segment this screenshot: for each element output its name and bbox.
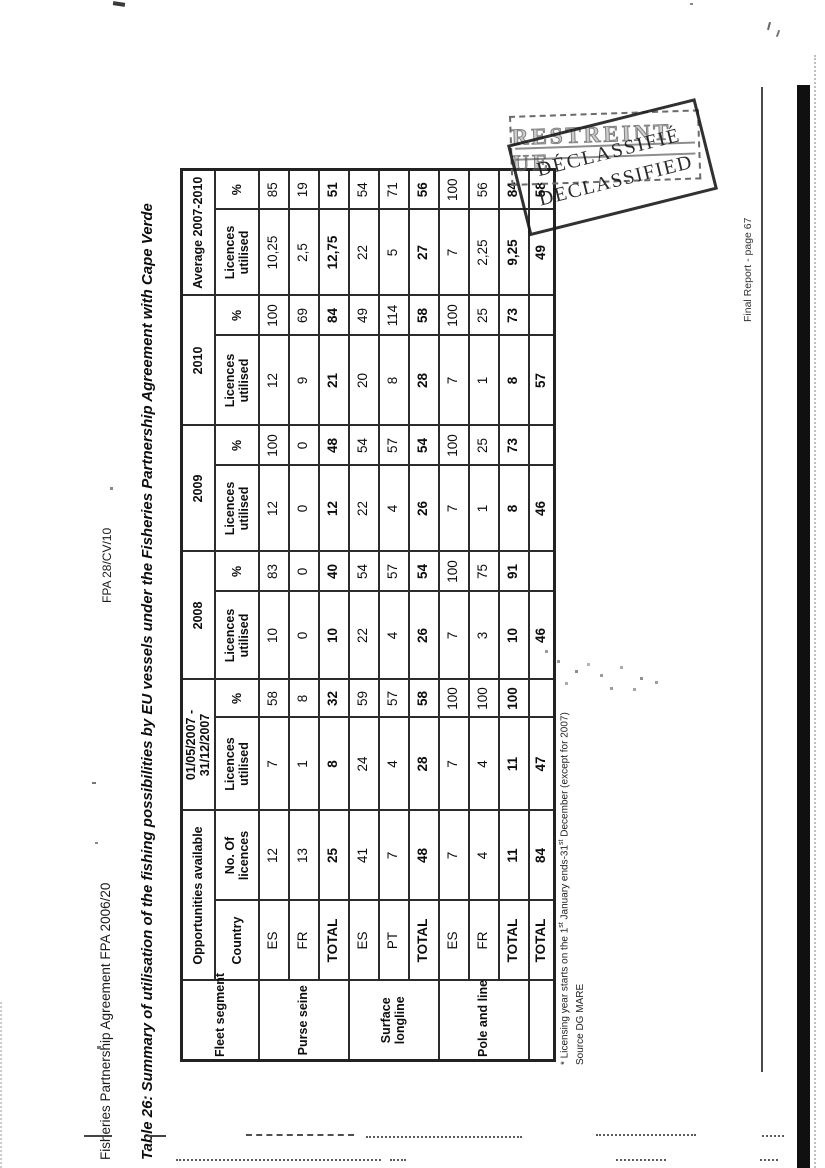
cell: 58 (259, 679, 289, 717)
col-header-licences-utilised: Licences utilised (215, 209, 259, 295)
cell: 11 (499, 717, 529, 810)
cell: 7 (439, 335, 469, 425)
scan-mark (92, 782, 96, 784)
cell: 46 (529, 465, 555, 551)
table-row-grand-total: TOTAL 84474646574958 (529, 169, 555, 1060)
cell: 0 (289, 591, 319, 679)
cell: 57 (379, 551, 409, 591)
cell: 75 (469, 551, 499, 591)
scan-dash (176, 1159, 381, 1161)
cell: 3 (469, 591, 499, 679)
cell (529, 679, 555, 717)
cell: 5 (379, 209, 409, 295)
cell (529, 425, 555, 465)
fleet-group-label: Pole and line (439, 981, 529, 1061)
cell-country: FR (289, 901, 319, 981)
cell: 7 (439, 591, 469, 679)
cell: 54 (349, 169, 379, 209)
cell: 48 (319, 425, 349, 465)
document-header-reference: FPA 28/CV/10 (100, 528, 114, 603)
cell-country: TOTAL (319, 901, 349, 981)
cell: 7 (439, 810, 469, 900)
cell: 83 (259, 551, 289, 591)
cell: 4 (379, 465, 409, 551)
table-row: Purse seine ES 127581083121001210010,258… (259, 169, 289, 1060)
cell: 57 (379, 425, 409, 465)
cell: 2,5 (289, 209, 319, 295)
col-header-percent: % (215, 295, 259, 335)
scan-dash (390, 1159, 406, 1161)
cell-country: FR (469, 901, 499, 981)
scan-noise-right-edge (814, 55, 816, 1168)
cell: 54 (349, 551, 379, 591)
cell-country: TOTAL (499, 901, 529, 981)
scan-dash (246, 1134, 354, 1136)
scan-dash (366, 1136, 522, 1138)
cell: 47 (529, 717, 555, 810)
cell: 84 (319, 295, 349, 335)
col-header-country: Country (215, 901, 259, 981)
cell: 32 (319, 679, 349, 717)
cell: 25 (469, 295, 499, 335)
col-header-licences-utilised: Licences utilised (215, 465, 259, 551)
cell: 27 (409, 209, 439, 295)
cell: 22 (349, 465, 379, 551)
cell: 28 (409, 717, 439, 810)
cell: 8 (499, 335, 529, 425)
table-header-row-1: Fleet segment Opportunities available 01… (182, 169, 215, 1060)
cell: 100 (439, 295, 469, 335)
col-header-percent: % (215, 679, 259, 717)
cell: 51 (319, 169, 349, 209)
col-header-percent: % (215, 551, 259, 591)
cell: 58 (409, 295, 439, 335)
table-header-row-2: Country No. Of licences Licences utilise… (215, 169, 259, 1060)
cell: 58 (409, 679, 439, 717)
scan-mark (97, 1046, 101, 1049)
scan-dash (762, 1135, 784, 1137)
cell-empty (529, 981, 555, 1061)
cell: 10,25 (259, 209, 289, 295)
cell (529, 551, 555, 591)
cell-country: PT (379, 901, 409, 981)
table-row-total: TOTAL 4828582654265428582756 (409, 169, 439, 1060)
col-header-licences-utilised: Licences utilised (215, 717, 259, 810)
cell: 59 (349, 679, 379, 717)
cell: 8 (379, 335, 409, 425)
cell-country: TOTAL (409, 901, 439, 981)
table-row: Surface longline ES 41245922542254204922… (349, 169, 379, 1060)
cell: 10 (259, 591, 289, 679)
cell: 8 (499, 465, 529, 551)
cell: 73 (499, 295, 529, 335)
scan-mark (95, 842, 98, 844)
col-header-licences-utilised: Licences utilised (215, 591, 259, 679)
cell-country: ES (259, 901, 289, 981)
cell: 0 (289, 425, 319, 465)
cell: 100 (439, 425, 469, 465)
col-header-fleet-segment: Fleet segment (182, 981, 259, 1061)
cell: 26 (409, 465, 439, 551)
table-footnote: * Licensing year starts on the 1st Janua… (558, 712, 570, 1065)
cell: 22 (349, 591, 379, 679)
footer-rule-line (761, 87, 763, 1072)
cell: 100 (469, 679, 499, 717)
cell: 4 (469, 810, 499, 900)
cell: 12 (259, 810, 289, 900)
cell: 20 (349, 335, 379, 425)
cell: 10 (499, 591, 529, 679)
cell: 1 (289, 717, 319, 810)
cell: 54 (349, 425, 379, 465)
cell: 11 (499, 810, 529, 900)
cell-country: TOTAL (529, 901, 555, 981)
cell: 12 (259, 335, 289, 425)
col-header-licences-utilised: Licences utilised (215, 335, 259, 425)
cell: 1 (469, 465, 499, 551)
cell: 54 (409, 551, 439, 591)
cell: 13 (289, 810, 319, 900)
cell: 41 (349, 810, 379, 900)
cell: 21 (319, 335, 349, 425)
cell: 7 (439, 465, 469, 551)
cell: 9,25 (499, 209, 529, 295)
cell: 7 (379, 810, 409, 900)
scan-mark (690, 3, 693, 5)
cell: 0 (289, 465, 319, 551)
cell: 100 (259, 295, 289, 335)
cell: 7 (439, 717, 469, 810)
cell: 49 (349, 295, 379, 335)
cell: 84 (529, 810, 555, 900)
table-row-total: TOTAL 111110010918738739,2584 (499, 169, 529, 1060)
cell: 7 (259, 717, 289, 810)
cell (529, 295, 555, 335)
cell: 7 (439, 209, 469, 295)
cell: 22 (349, 209, 379, 295)
cell: 26 (409, 591, 439, 679)
table-row: FR 441003751251252,2556 (469, 169, 499, 1060)
col-header-opportunities: Opportunities available (182, 810, 215, 980)
cell: 69 (289, 295, 319, 335)
cell-country: ES (439, 901, 469, 981)
cell: 10 (319, 591, 349, 679)
col-header-percent: % (215, 425, 259, 465)
cell: 91 (499, 551, 529, 591)
table-title: Table 26: Summary of utilisation of the … (139, 203, 156, 1160)
col-header-percent: % (215, 169, 259, 209)
fleet-group-label: Purse seine (259, 981, 349, 1061)
cell: 4 (379, 591, 409, 679)
cell: 57 (379, 679, 409, 717)
cell: 25 (469, 425, 499, 465)
scan-speckles (545, 650, 548, 653)
scan-mark (110, 487, 113, 490)
scan-edge-bar (797, 85, 810, 1168)
col-header-no-of-licences: No. Of licences (215, 810, 259, 900)
cell: 12 (259, 465, 289, 551)
col-header-2010: 2010 (182, 295, 215, 425)
table-row: PT 74574574578114571 (379, 169, 409, 1060)
document-header-left: Fisheries Partnership Agreement FPA 2006… (98, 883, 113, 1160)
col-header-average: Average 2007-2010 (182, 169, 215, 295)
cell: 9 (289, 335, 319, 425)
scanned-document-screenshot: { "page": { "header_left": "Fisheries Pa… (0, 0, 825, 1168)
cell: 100 (439, 551, 469, 591)
fleet-group-label: Surface longline (349, 981, 439, 1061)
cell: 28 (409, 335, 439, 425)
scan-dash (616, 1159, 666, 1161)
cell: 100 (439, 169, 469, 209)
cell: 56 (409, 169, 439, 209)
cell: 12,75 (319, 209, 349, 295)
col-header-period-2007: 01/05/2007 - 31/12/2007 (182, 679, 215, 810)
cell: 4 (469, 717, 499, 810)
cell: 12 (319, 465, 349, 551)
cell: 8 (289, 679, 319, 717)
cell: 24 (349, 717, 379, 810)
cell: 56 (469, 169, 499, 209)
scan-dash (148, 1135, 166, 1137)
scan-noise-left-edge (0, 1002, 2, 1168)
cell: 8 (319, 717, 349, 810)
scan-dash (84, 1135, 112, 1137)
scan-dash (596, 1134, 696, 1136)
cell: 100 (499, 679, 529, 717)
cell: 2,25 (469, 209, 499, 295)
cell: 19 (289, 169, 319, 209)
cell: 57 (529, 335, 555, 425)
scan-dash (760, 1159, 778, 1161)
cell: 40 (319, 551, 349, 591)
cell: 100 (439, 679, 469, 717)
source-note: Source DG MARE (575, 984, 586, 1065)
table-row-total: TOTAL 2583210401248218412,7551 (319, 169, 349, 1060)
cell: 4 (379, 717, 409, 810)
cell: 0 (289, 551, 319, 591)
cell: 73 (499, 425, 529, 465)
cell: 71 (379, 169, 409, 209)
utilisation-table: Fleet segment Opportunities available 01… (180, 168, 556, 1062)
cell-country: ES (349, 901, 379, 981)
cell: 48 (409, 810, 439, 900)
cell: 114 (379, 295, 409, 335)
col-header-2008: 2008 (182, 551, 215, 679)
cell: 1 (469, 335, 499, 425)
cell: 85 (259, 169, 289, 209)
col-header-2009: 2009 (182, 425, 215, 551)
cell: 46 (529, 591, 555, 679)
table-row: Pole and line ES 771007100710071007100 (439, 169, 469, 1060)
page-footer: Final Report - page 67 (742, 218, 754, 322)
cell: 100 (259, 425, 289, 465)
cell: 25 (319, 810, 349, 900)
cell: 54 (409, 425, 439, 465)
table-row: FR 131800009692,519 (289, 169, 319, 1060)
